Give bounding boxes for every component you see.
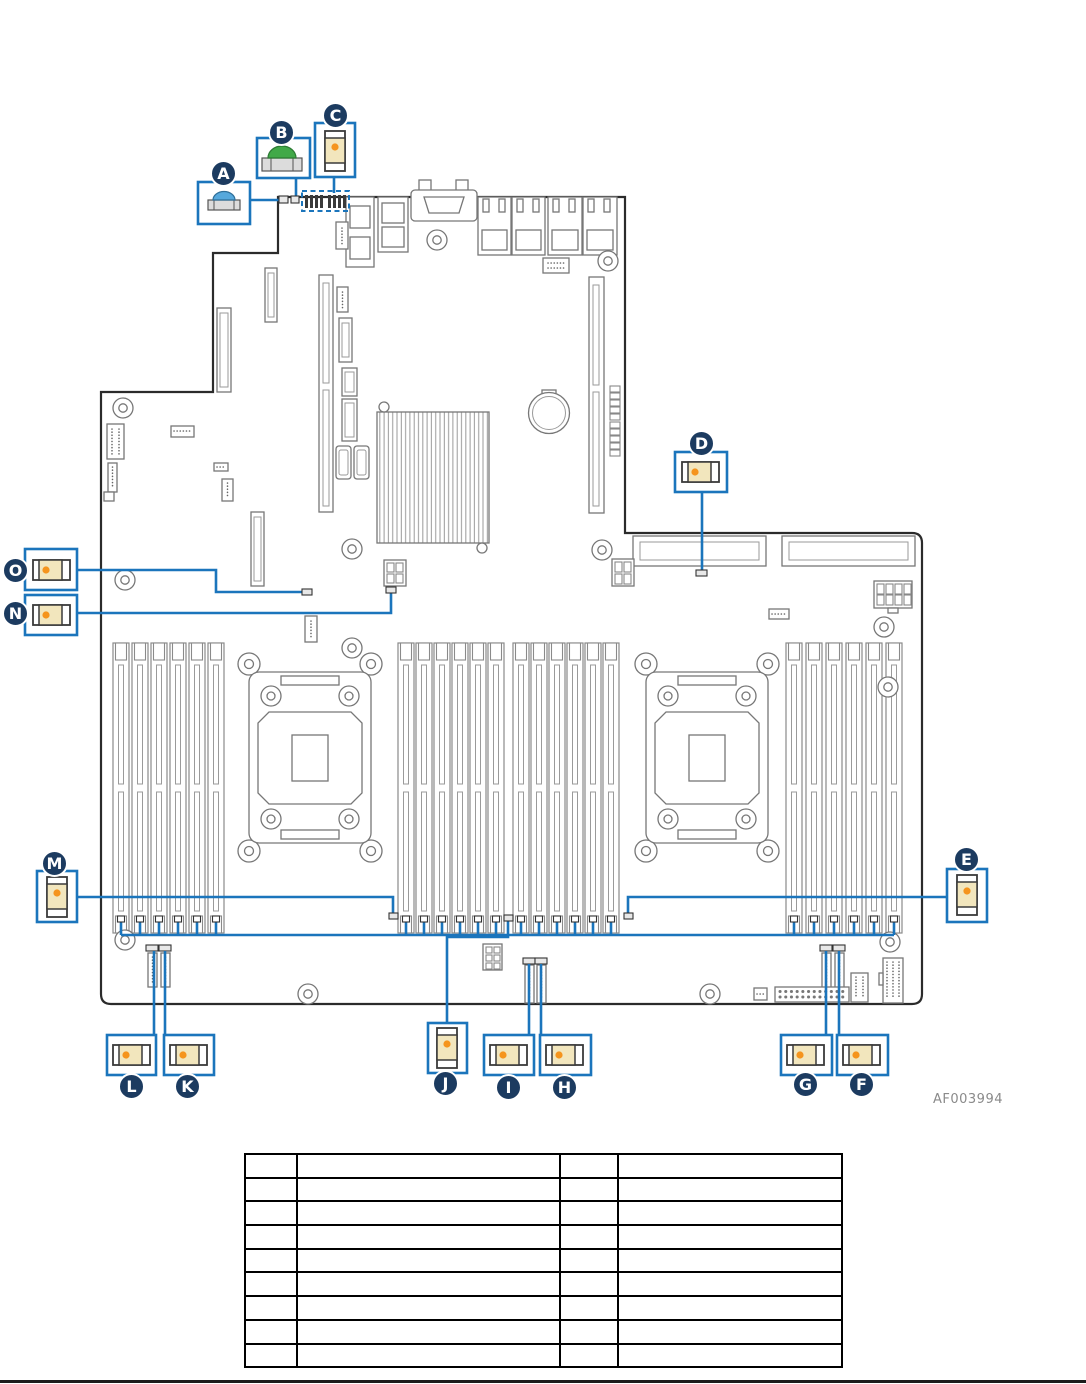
legend-cell (245, 1296, 297, 1320)
legend-cell (297, 1320, 560, 1344)
vga-connector (411, 180, 477, 221)
callout-badge-h: H (551, 1074, 578, 1101)
callout-badge-o: O (2, 557, 29, 584)
jumper-icon-k (170, 1045, 207, 1065)
legend-cell (245, 1178, 297, 1202)
jumper-icon-j (437, 1028, 457, 1068)
cpu-socket-2 (635, 653, 779, 862)
legend-cell (618, 1296, 842, 1320)
legend-cell (560, 1154, 618, 1178)
legend-cell (560, 1249, 618, 1273)
table-row (245, 1272, 842, 1296)
legend-cell (297, 1272, 560, 1296)
callout-badge-c: C (322, 102, 349, 129)
page: A B C D E F G H I J K L M N O AF003994 (0, 0, 1086, 1384)
legend-cell (245, 1225, 297, 1249)
callout-badge-a: A (210, 160, 237, 187)
jumper-icon-l (113, 1045, 150, 1065)
table-row (245, 1344, 842, 1368)
legend-cell (297, 1344, 560, 1368)
legend-cell (297, 1225, 560, 1249)
jumper-icon-c (325, 131, 345, 171)
callout-badge-e: E (953, 846, 980, 873)
callout-badge-k: K (174, 1073, 201, 1100)
legend-cell (618, 1249, 842, 1273)
legend-cell (297, 1154, 560, 1178)
cpu-socket-1 (238, 653, 382, 862)
table-row (245, 1201, 842, 1225)
callout-badge-f: F (848, 1071, 875, 1098)
jumper-icon-f (843, 1045, 880, 1065)
legend-cell (618, 1225, 842, 1249)
legend-cell (245, 1272, 297, 1296)
jumper-icon-g (787, 1045, 824, 1065)
legend-cell (245, 1249, 297, 1273)
jumper-icon-d (682, 462, 719, 482)
table-row (245, 1249, 842, 1273)
figure-code: AF003994 (933, 1092, 1003, 1107)
legend-cell (245, 1201, 297, 1225)
legend-cell (560, 1272, 618, 1296)
legend-cell (297, 1201, 560, 1225)
legend-cell (245, 1154, 297, 1178)
legend-cell (560, 1320, 618, 1344)
callout-badge-b: B (268, 119, 295, 146)
callout-badge-n: N (2, 600, 29, 627)
legend-cell (618, 1320, 842, 1344)
legend-cell (297, 1178, 560, 1202)
callout-badge-l: L (118, 1073, 145, 1100)
legend-cell (245, 1344, 297, 1368)
jumper-icon-m (47, 877, 67, 917)
legend-cell (297, 1249, 560, 1273)
page-bottom-rule (0, 1380, 1086, 1383)
legend-cell (560, 1225, 618, 1249)
legend-cell (297, 1296, 560, 1320)
jumper-icon-n (33, 605, 70, 625)
jumper-icon-i (490, 1045, 527, 1065)
nic-ports (478, 197, 617, 255)
callout-badge-j: J (432, 1070, 459, 1097)
legend-table (244, 1153, 843, 1368)
jumper-icon-e (957, 875, 977, 915)
legend-cell (560, 1201, 618, 1225)
legend-cell (618, 1201, 842, 1225)
table-row (245, 1154, 842, 1178)
callout-badge-m: M (41, 850, 68, 877)
table-row (245, 1320, 842, 1344)
legend-cell (560, 1178, 618, 1202)
callout-badge-i: I (495, 1074, 522, 1101)
legend-cell (618, 1178, 842, 1202)
legend-cell (245, 1320, 297, 1344)
legend-cell (560, 1344, 618, 1368)
legend-cell (618, 1344, 842, 1368)
chipset-heatsink (377, 402, 489, 553)
legend-cell (560, 1296, 618, 1320)
legend-cell (618, 1272, 842, 1296)
jumper-icon-h (546, 1045, 583, 1065)
legend-cell (618, 1154, 842, 1178)
callout-badge-g: G (792, 1071, 819, 1098)
table-row (245, 1178, 842, 1202)
table-row (245, 1225, 842, 1249)
table-row (245, 1296, 842, 1320)
callout-badge-d: D (688, 430, 715, 457)
jumper-icon-o (33, 560, 70, 580)
